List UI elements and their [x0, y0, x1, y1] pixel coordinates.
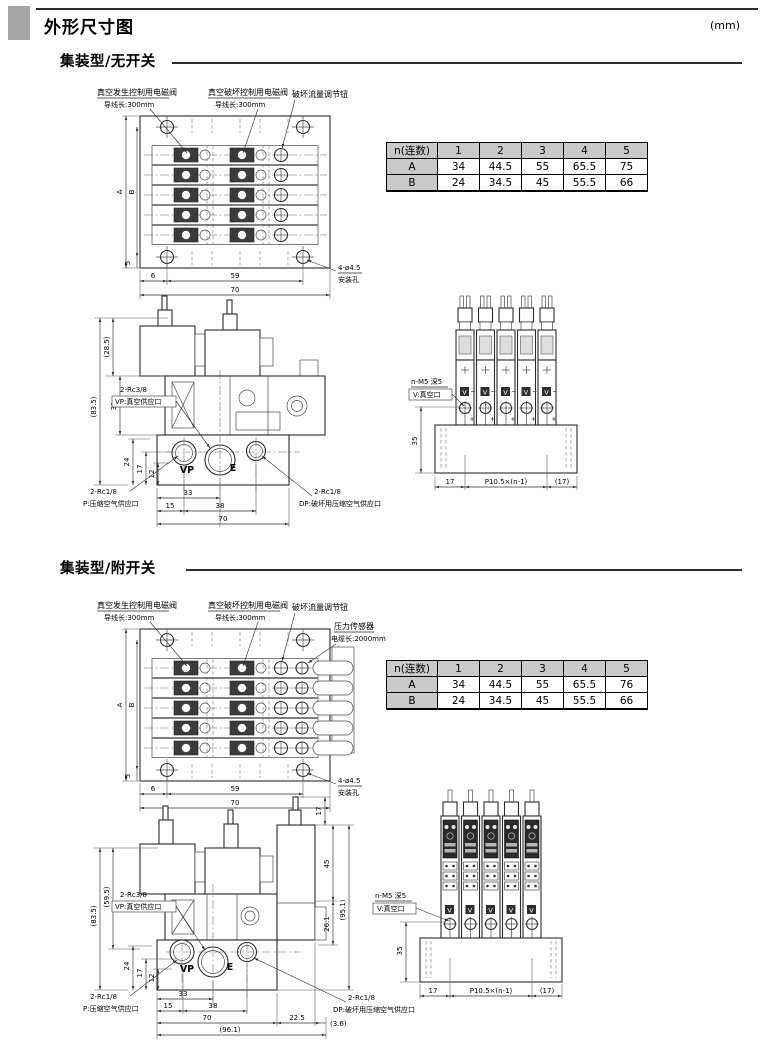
- callout-rc18-p: 2-Rc1/8: [90, 993, 117, 1001]
- dim-38: 38: [216, 502, 225, 510]
- callout-p-port: P:压缩空气供应口: [83, 499, 139, 508]
- vbreak-solenoid: [205, 330, 260, 376]
- callout-rc38: 2-Rc3/8: [120, 386, 147, 394]
- callout-sensor-cable: 电缆长:2000mm: [331, 634, 386, 643]
- mark-vp: VP: [180, 964, 194, 975]
- callout-m5: n-M5 深5: [375, 891, 406, 900]
- dim-3-6: (3.6): [330, 1020, 347, 1028]
- cell-A3: 55: [522, 159, 564, 175]
- cell-A2: 44.5: [480, 677, 522, 693]
- col-header-1: 1: [438, 661, 480, 677]
- cell-B2: 34.5: [480, 693, 522, 710]
- dim-15: 15: [166, 502, 175, 510]
- dim-26-1: 26.1: [323, 916, 331, 932]
- dim-15: 15: [164, 1002, 173, 1010]
- col-header-3: 3: [522, 143, 564, 159]
- callout-v-port: V:真空口: [377, 904, 405, 913]
- cell-B4: 55.5: [564, 693, 606, 710]
- col-header-n: n(连数): [387, 661, 438, 677]
- callout-vp-port: VP:真空供应口: [115, 902, 161, 911]
- dim-24: 24: [123, 457, 131, 466]
- dim-17: 17: [136, 969, 144, 978]
- cell-B4: 55.5: [564, 175, 606, 192]
- dim-35: 35: [396, 947, 404, 956]
- cell-A4: 65.5: [564, 677, 606, 693]
- dim-17: 17: [446, 478, 455, 486]
- col-header-5: 5: [606, 661, 648, 677]
- dim-83-5: (83.5): [90, 396, 98, 417]
- callout-pressure-sensor: 压力传感器: [334, 621, 374, 631]
- cell-A4: 65.5: [564, 159, 606, 175]
- col-header-5: 5: [606, 143, 648, 159]
- table-header-row: n(连数) 1 2 3 4 5: [387, 143, 648, 159]
- callout-rc38: 2-Rc3/8: [120, 891, 147, 899]
- callout-p-port: P:压缩空气供应口: [83, 1004, 139, 1013]
- section1-dimension-table: n(连数) 1 2 3 4 5 A 34 44.5 55 65.5 75 B 2…: [386, 142, 648, 192]
- dim-pitch: P10.5×(n-1): [470, 987, 513, 995]
- section1-top-view: [97, 87, 362, 299]
- cell-B3: 45: [522, 693, 564, 710]
- section2-dimension-table: n(连数) 1 2 3 4 5 A 34 44.5 55 65.5 76 B 2…: [386, 660, 648, 710]
- dim-28-5: (28.5): [103, 336, 111, 357]
- manifold-base: [435, 425, 577, 473]
- cell-A3: 55: [522, 677, 564, 693]
- section2-side-view: 35 17 P10.5×(n-1) (17) n-M5 深5 V:真空口: [373, 790, 562, 999]
- mark-vp: VP: [180, 465, 194, 476]
- col-header-4: 4: [564, 661, 606, 677]
- vgen-solenoid: [140, 326, 195, 376]
- dim-35: 35: [411, 437, 419, 446]
- dim-24: 24: [123, 961, 131, 970]
- cell-A5: 76: [606, 677, 648, 693]
- callout-dp-port: DP:破坏用压缩空气供应口: [333, 1005, 415, 1014]
- dim-59-5: (59.5): [103, 886, 111, 907]
- callout-m5: n-M5 深5: [411, 377, 442, 386]
- callout-vp-port: VP:真空供应口: [115, 397, 161, 406]
- cell-B1: 24: [438, 175, 480, 192]
- dim-38: 38: [209, 1002, 218, 1010]
- section2-front-view: VP E (83.5) (59.5) 24 17 12: [83, 797, 415, 1039]
- dim-33: 33: [184, 489, 193, 497]
- col-header-2: 2: [480, 661, 522, 677]
- row-label-B: B: [387, 693, 438, 710]
- dim-pitch: P10.5×(n-1): [485, 478, 528, 486]
- row-label-B: B: [387, 175, 438, 192]
- dim-45: 45: [323, 860, 331, 869]
- section2-side-callout: n-M5 深5 V:真空口: [373, 891, 449, 921]
- callout-dp-port: DP:破坏用压缩空气供应口: [299, 499, 381, 508]
- dim-s17: 17: [315, 807, 323, 816]
- vgen-solenoid: [140, 844, 195, 894]
- mark-e: E: [230, 463, 237, 474]
- catalog-page: 外形尺寸图 (mm) 集装型/无开关 集装型/附开关: [0, 0, 766, 1050]
- table-row-A: A 34 44.5 55 65.5 75: [387, 159, 648, 175]
- dim-17: 17: [429, 987, 438, 995]
- cell-B1: 24: [438, 693, 480, 710]
- table-row-B: B 24 34.5 45 55.5 66: [387, 693, 648, 710]
- table-header-row: n(连数) 1 2 3 4 5: [387, 661, 648, 677]
- col-header-4: 4: [564, 143, 606, 159]
- col-header-3: 3: [522, 661, 564, 677]
- dim-17: 17: [136, 465, 144, 474]
- cell-A2: 44.5: [480, 159, 522, 175]
- section1-side-view: 35 17 P10.5×(n-1) (17) n-M5 深5 V:真空口: [409, 296, 577, 490]
- cell-B2: 34.5: [480, 175, 522, 192]
- col-header-n: n(连数): [387, 143, 438, 159]
- cell-B5: 66: [606, 693, 648, 710]
- dim-70: 70: [203, 1014, 212, 1022]
- callout-rc18-dp: 2-Rc1/8: [348, 994, 375, 1002]
- row-label-A: A: [387, 159, 438, 175]
- table-row-B: B 24 34.5 45 55.5 66: [387, 175, 648, 192]
- mark-e: E: [227, 962, 234, 973]
- dim-96-1: (96.1): [219, 1026, 240, 1034]
- dim-17p: (17): [555, 478, 570, 486]
- table-row-A: A 34 44.5 55 65.5 76: [387, 677, 648, 693]
- row-label-A: A: [387, 677, 438, 693]
- callout-rc18-dp: 2-Rc1/8: [314, 488, 341, 496]
- col-header-1: 1: [438, 143, 480, 159]
- pressure-sensor-block: [277, 825, 315, 940]
- dimension-drawings: A B 5 6 59 70 真空发生控制用电磁: [0, 0, 766, 1050]
- cell-A1: 34: [438, 677, 480, 693]
- section1-front-view: VP E (28.5) (83.5) 31 24 17: [83, 296, 381, 527]
- cell-B5: 66: [606, 175, 648, 192]
- manifold-base: [420, 938, 562, 982]
- callout-rc18-p: 2-Rc1/8: [90, 488, 117, 496]
- dim-95-1: (95.1): [339, 899, 347, 920]
- dim-17p: (17): [540, 987, 555, 995]
- cell-B3: 45: [522, 175, 564, 192]
- dim-70: 70: [219, 515, 228, 523]
- callout-v-port: V:真空口: [413, 390, 441, 399]
- dim-83-5: (83.5): [90, 905, 98, 926]
- dim-22-5: 22.5: [289, 1014, 305, 1022]
- dim-33: 33: [179, 990, 188, 998]
- cell-A5: 75: [606, 159, 648, 175]
- valve-body: [165, 894, 277, 940]
- cell-A1: 34: [438, 159, 480, 175]
- col-header-2: 2: [480, 143, 522, 159]
